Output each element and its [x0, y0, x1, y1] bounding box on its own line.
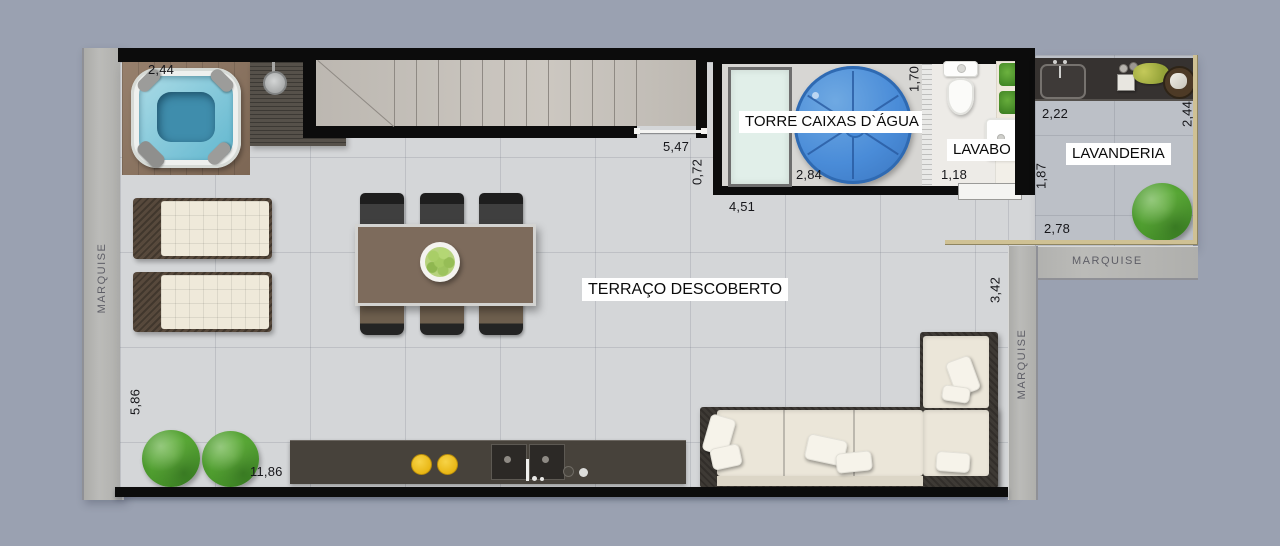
awning-right-side-label: MARQUISE	[1016, 329, 1028, 400]
flower-pot	[411, 454, 432, 475]
counter-knob	[563, 466, 574, 477]
sofa-pillow	[835, 450, 873, 474]
laundry-faucet-knob	[1063, 60, 1067, 64]
toilet-flush-button	[957, 64, 966, 73]
counter-knob	[579, 468, 588, 477]
stairs-railing-end	[701, 128, 707, 134]
wall-lavabo-laundry	[1015, 48, 1035, 195]
dim-laundry-width: 2,78	[1044, 221, 1070, 236]
dim-laundry-counter-width: 2,22	[1042, 106, 1068, 121]
counter-faucet-dot	[540, 477, 544, 481]
dim-hot-tub-width: 2,44	[148, 62, 174, 77]
dim-terrace-left-depth: 5,86	[128, 389, 143, 415]
dim-laundry-wall-height: 1,87	[1034, 163, 1049, 189]
bar-counter	[290, 440, 686, 484]
dining-chair	[360, 193, 404, 227]
water-tower-label: TORRE CAIXAS D`ÁGUA	[739, 111, 925, 133]
dim-stairs-offset: 0,72	[690, 159, 705, 185]
counter-sink-drain	[504, 456, 511, 463]
sofa-pillow	[935, 451, 970, 473]
bush	[142, 430, 200, 487]
dining-chair	[479, 193, 523, 227]
awning-right-top-label: MARQUISE	[1072, 255, 1143, 267]
floor-plan-canvas: MARQUISE 2,44 1,06 5,47 0,72 TORRE CAIXA…	[0, 0, 1280, 546]
dim-water-tank-bay-width: 2,84	[796, 167, 822, 182]
dim-water-tower-depth: 1,70	[907, 66, 922, 92]
sofa-seat-edge	[717, 476, 923, 486]
stairs-railing-end	[634, 128, 640, 134]
dim-terrace-side-depth: 3,42	[988, 277, 1003, 303]
laundry-basket-cloth	[1170, 73, 1187, 89]
counter-faucet	[526, 459, 529, 481]
laundry-sink	[1040, 64, 1086, 99]
fruit-plate-apples	[425, 247, 455, 277]
dim-terrace-width: 11,86	[250, 464, 283, 479]
stairs-railing	[637, 130, 703, 133]
toilet-bowl	[947, 78, 974, 115]
hot-tub-deep-seat	[157, 92, 215, 142]
flower-pot	[437, 454, 458, 475]
laundry-soap-item	[1117, 74, 1135, 91]
dim-stairs-length: 5,47	[663, 139, 689, 154]
lavabo-label: LAVABO	[947, 139, 1017, 161]
laundry-soap-dot	[1119, 64, 1128, 73]
dim-lavatory-width: 1,18	[941, 167, 967, 182]
laundry-faucet-knob	[1053, 60, 1057, 64]
wall-bottom	[115, 487, 1008, 497]
shower-head-icon	[263, 71, 287, 95]
lavabo-door-opening	[958, 183, 1022, 200]
dim-water-tower-width: 4,51	[729, 199, 755, 214]
laundry-faucet	[1059, 66, 1061, 78]
railing-bottom	[945, 240, 1197, 244]
dining-chair	[420, 193, 464, 227]
terrace-label: TERRAÇO DESCOBERTO	[582, 278, 788, 301]
laundry-label: LAVANDERIA	[1066, 143, 1171, 165]
laundry-tree	[1132, 183, 1192, 241]
stairs-treads	[394, 60, 638, 126]
railing-right	[1193, 55, 1197, 245]
lounge-chair-cushion	[161, 201, 269, 256]
lounge-chair-cushion	[161, 275, 269, 329]
counter-sink-drain	[542, 456, 549, 463]
counter-faucet-dot	[532, 476, 537, 481]
lavabo-divider-door	[922, 64, 932, 186]
round-water-tank-highlight	[812, 92, 819, 99]
awning-left-label: MARQUISE	[96, 243, 108, 314]
